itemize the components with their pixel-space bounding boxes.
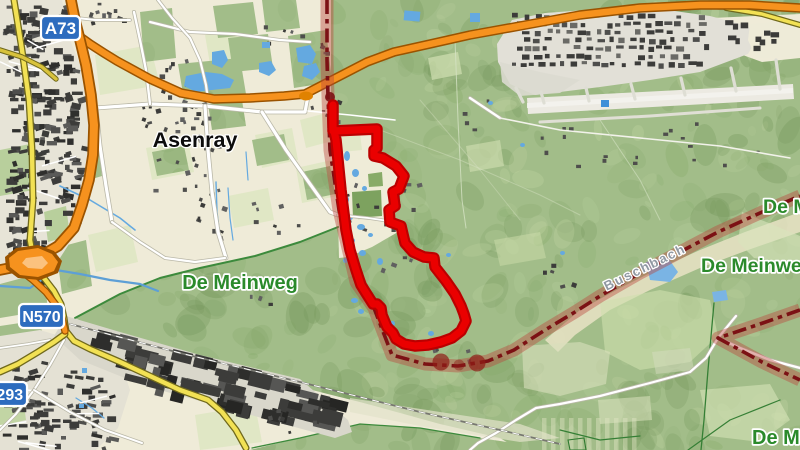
svg-text:De Meinweg: De Meinweg [701, 255, 800, 277]
svg-text:De Meinweg: De Meinweg [182, 272, 298, 294]
svg-text:N293: N293 [0, 387, 23, 404]
svg-text:De Meinweg: De Meinweg [763, 196, 800, 218]
svg-text:De Meinweg: De Meinweg [752, 427, 800, 449]
svg-text:Asenray: Asenray [153, 128, 238, 152]
svg-text:A73: A73 [45, 19, 76, 38]
svg-text:N570: N570 [22, 309, 60, 326]
